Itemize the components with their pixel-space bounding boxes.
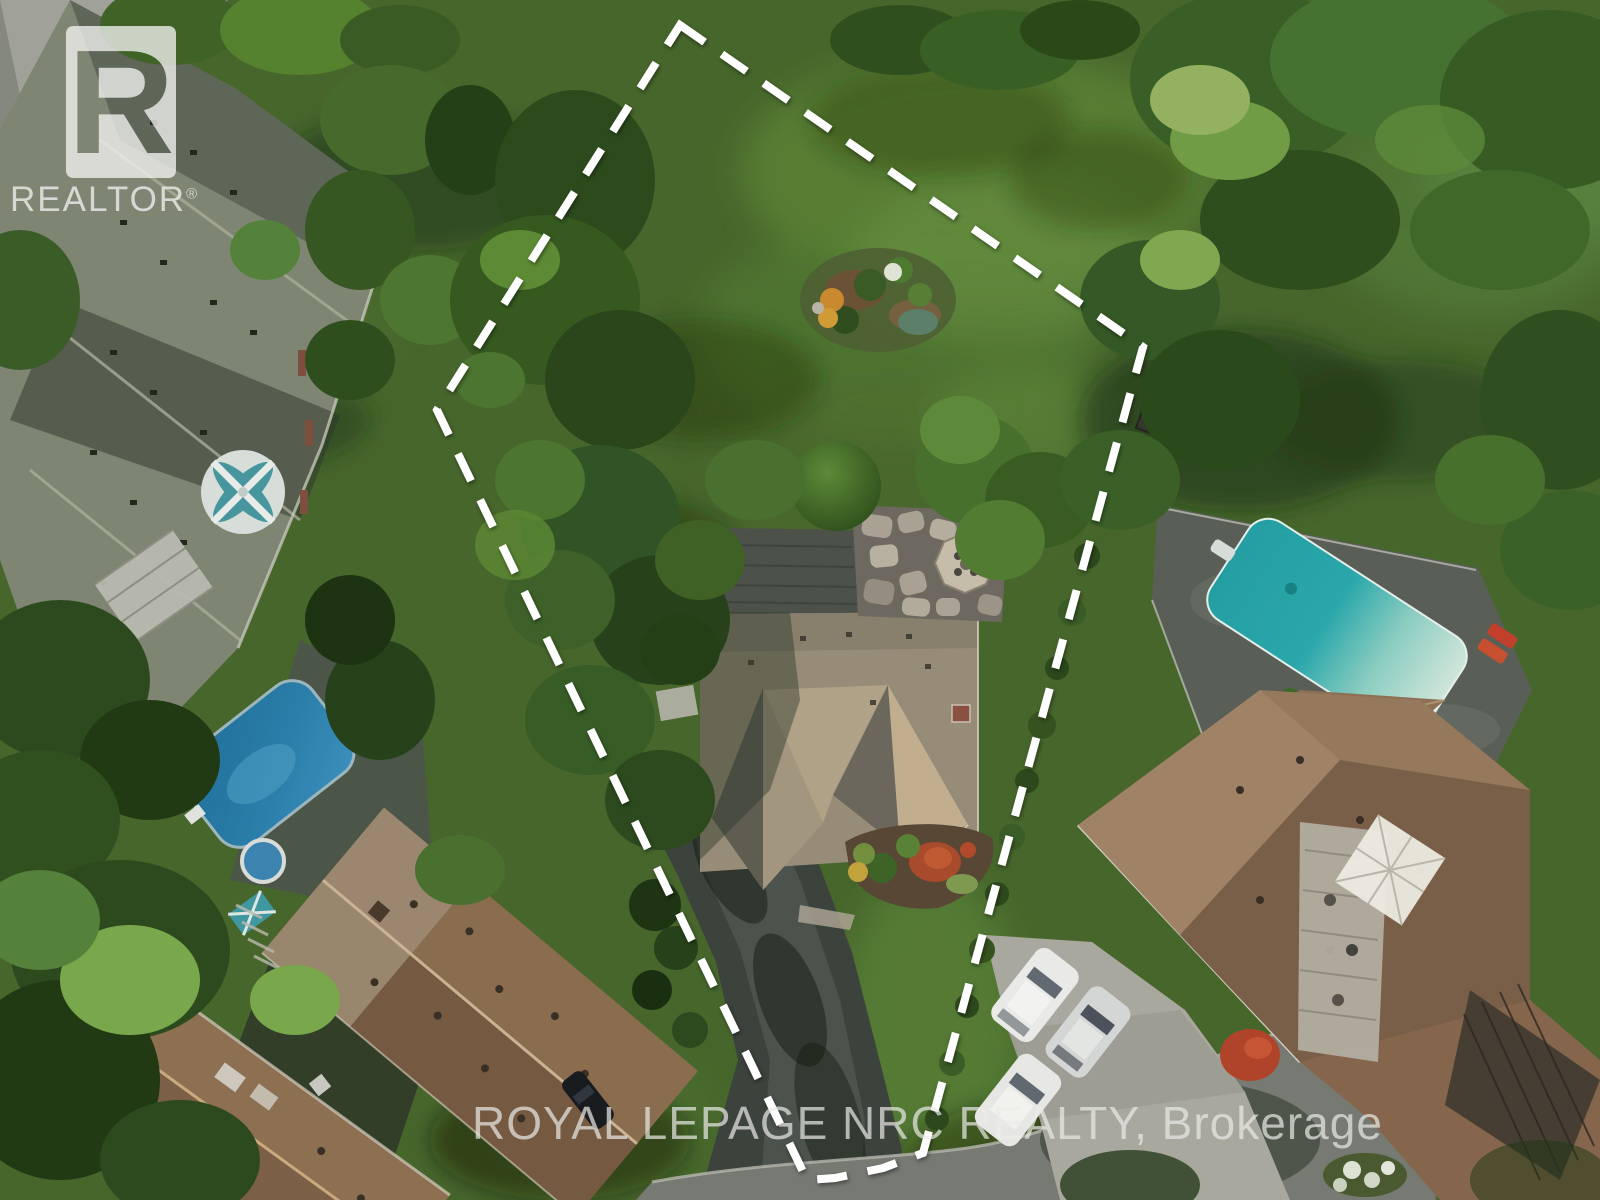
aerial-scene: R — [0, 0, 1600, 1200]
chimney — [952, 705, 970, 722]
round-above-ground-pool — [242, 840, 284, 882]
realtor-logo — [66, 26, 176, 178]
yellow-flowers — [848, 862, 868, 882]
white-flowers — [884, 263, 902, 281]
flower-garden — [800, 248, 956, 352]
juniper — [898, 309, 938, 335]
red-maple-highlight — [1244, 1037, 1272, 1059]
ornamental-grass — [946, 874, 978, 894]
small-lawn-tree — [230, 220, 300, 280]
bright-tree — [250, 965, 340, 1035]
patio-umbrella — [201, 450, 285, 534]
aerial-photo: R — [0, 0, 1600, 1200]
watermark-realtor: REALTOR® — [10, 180, 199, 220]
garden-bed-white-flowers — [1323, 1153, 1407, 1197]
birdbath — [812, 302, 824, 314]
round-shrub — [791, 441, 881, 531]
registered-mark: ® — [186, 185, 199, 202]
watermark-brokerage: ROYAL LEPAGE NRC REALTY, Brokerage — [472, 1096, 1383, 1150]
